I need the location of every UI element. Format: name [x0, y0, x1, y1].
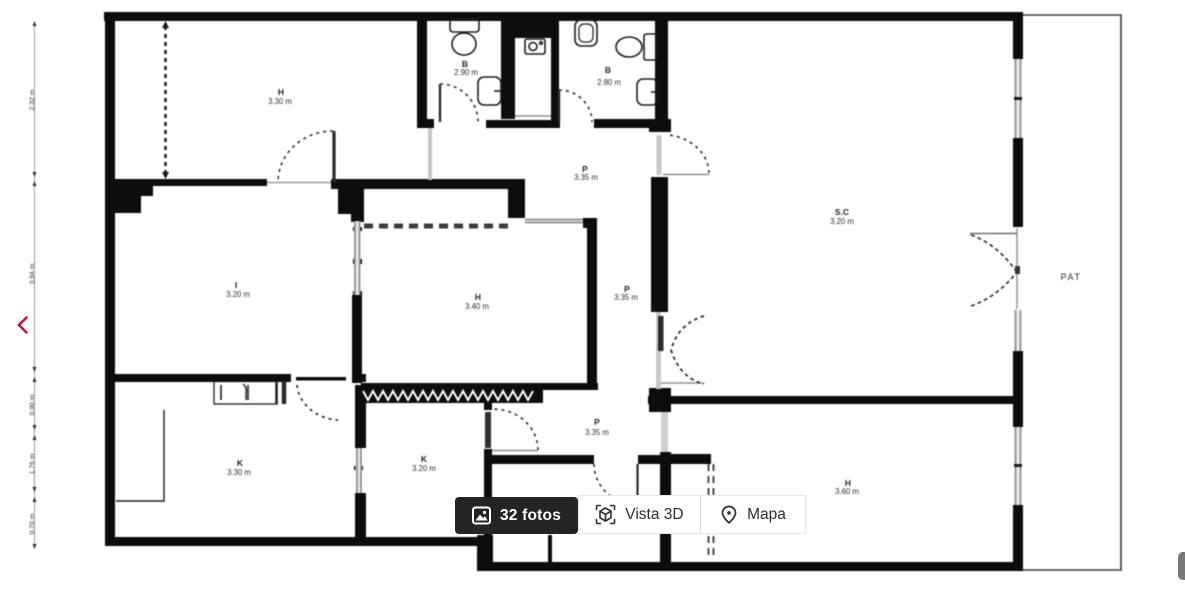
svg-text:3.20 m: 3.20 m	[412, 464, 436, 473]
svg-text:3.35 m: 3.35 m	[614, 293, 638, 302]
svg-text:3.30 m: 3.30 m	[268, 97, 292, 106]
svg-text:0.90 m: 0.90 m	[29, 394, 36, 415]
svg-text:I: I	[235, 280, 237, 290]
svg-text:H: H	[278, 87, 284, 97]
svg-text:3.20 m: 3.20 m	[830, 217, 854, 226]
svg-text:3.60 m: 3.60 m	[835, 487, 859, 496]
svg-text:3.94 m: 3.94 m	[29, 263, 36, 284]
svg-text:K: K	[421, 454, 428, 464]
svg-text:3.35 m: 3.35 m	[585, 428, 609, 437]
svg-text:2.80 m: 2.80 m	[597, 78, 621, 87]
svg-text:0.70 m: 0.70 m	[29, 513, 36, 534]
svg-text:3.30 m: 3.30 m	[227, 468, 251, 477]
svg-text:3.40 m: 3.40 m	[465, 302, 489, 311]
svg-text:2.32 m: 2.32 m	[29, 89, 36, 110]
svg-text:1.76 m: 1.76 m	[29, 453, 36, 474]
svg-text:P: P	[594, 417, 600, 427]
svg-text:PAT: PAT	[1061, 272, 1082, 282]
svg-text:2.90 m: 2.90 m	[454, 68, 478, 77]
svg-text:3.35 m: 3.35 m	[574, 173, 598, 182]
svg-text:3.20 m: 3.20 m	[226, 290, 250, 299]
svg-text:K: K	[237, 458, 244, 468]
svg-text:S.C: S.C	[835, 207, 849, 217]
svg-text:H: H	[475, 292, 481, 302]
svg-text:B: B	[605, 65, 611, 75]
